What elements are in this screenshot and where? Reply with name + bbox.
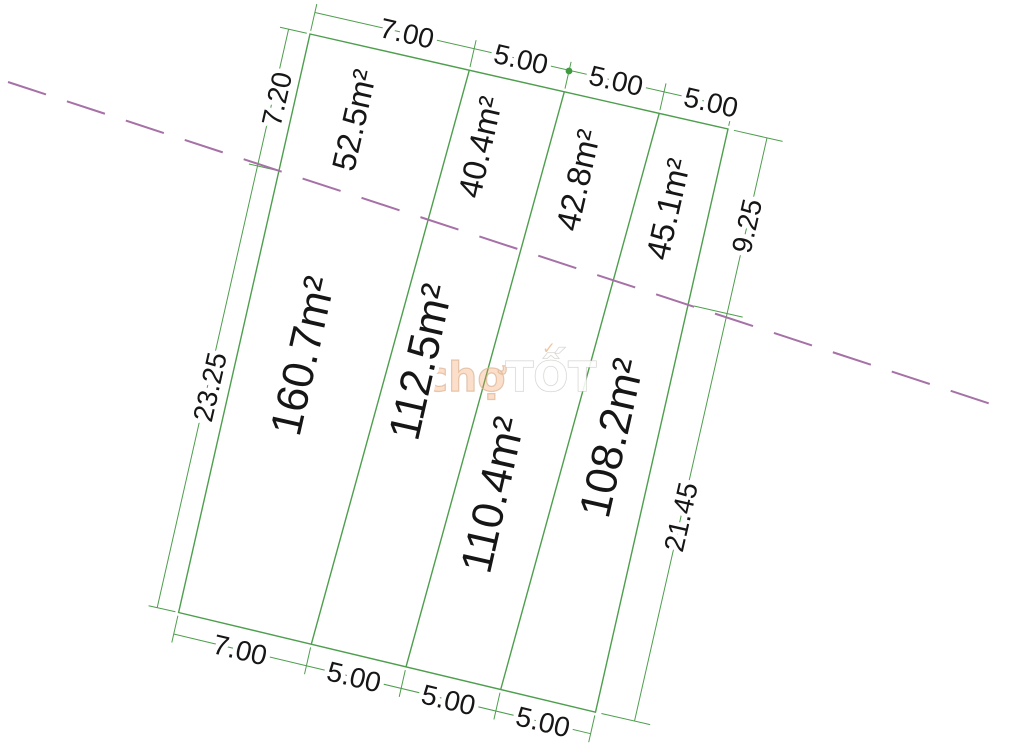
dim-right-upper: 9.25 (726, 196, 768, 256)
lower-plot-area-labels: 160.7m² 112.5m² 110.4m² 108.2m² (261, 272, 654, 578)
watermark: chợTỐT ✓ (424, 341, 596, 402)
watermark-check-icon: ✓ (542, 341, 555, 358)
dim-right-lower: 21.45 (658, 479, 704, 554)
survey-marker-dot (566, 68, 573, 75)
dim-top-3: 5.00 (586, 60, 646, 102)
dim-left-upper: 7.20 (256, 69, 298, 129)
plot-upper-2-area: 40.4m² (451, 93, 510, 201)
dim-bottom-1: 7.00 (210, 629, 270, 672)
watermark-text: chợTỐT (424, 347, 596, 401)
plot-upper-1-area: 52.5m² (325, 66, 384, 174)
land-plot-diagram: chợTỐT ✓ 7.00 5.00 5.00 5.00 7.00 5.00 5… (0, 0, 1024, 754)
upper-plot-area-labels: 52.5m² 40.4m² 42.8m² 45.1m² (325, 66, 698, 263)
dim-left-lower: 23.25 (187, 349, 233, 424)
dim-top-4: 5.00 (681, 81, 741, 123)
dim-top-2: 5.00 (491, 38, 551, 80)
dim-top-1: 7.00 (377, 12, 437, 54)
plot-lower-3-area: 110.4m² (452, 412, 535, 577)
plot-upper-4-area: 45.1m² (639, 155, 698, 263)
plot-upper-3-area: 42.8m² (549, 126, 608, 234)
survey-sketch-page: chợTỐT ✓ 7.00 5.00 5.00 5.00 7.00 5.00 5… (0, 0, 1024, 754)
dim-bottom-4: 5.00 (513, 701, 573, 744)
dim-bottom-2: 5.00 (324, 656, 384, 699)
dim-bottom-3: 5.00 (418, 679, 478, 722)
plot-lower-1-area: 160.7m² (261, 272, 345, 440)
